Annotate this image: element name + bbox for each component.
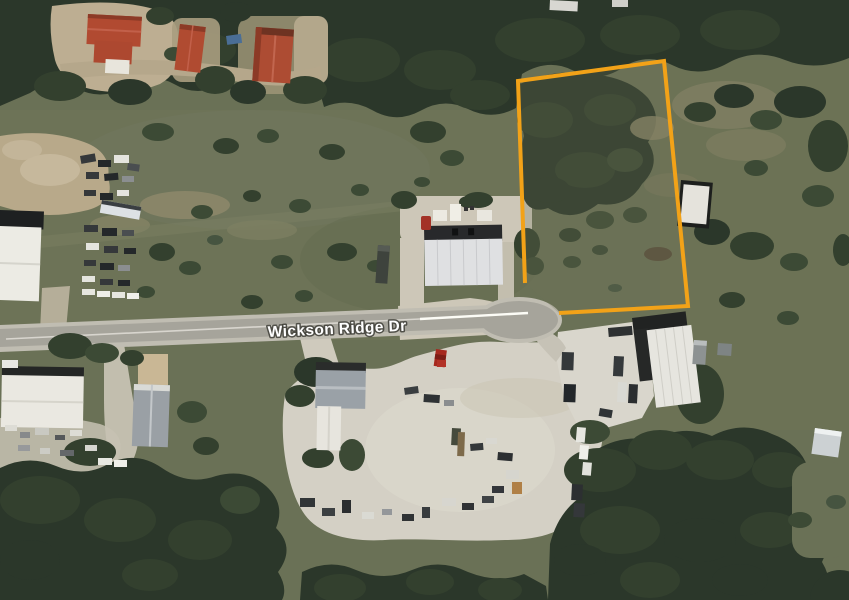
building-bottomright-shed <box>811 428 841 458</box>
building-left-white-warehouse <box>0 210 44 301</box>
building-shed-right-of-parcel <box>677 180 713 229</box>
building-house-red-3 <box>252 27 294 84</box>
building-bottomleft-warehouse <box>1 366 84 428</box>
building-small-shed-a <box>433 210 447 221</box>
building-small-shed-b <box>450 204 461 221</box>
satellite-map[interactable]: Wickson Ridge Dr <box>0 0 849 600</box>
parcel-interior <box>518 61 688 313</box>
building-small-shed-c <box>477 210 492 221</box>
parcel-overlay <box>518 61 688 313</box>
building-gray-shed <box>132 384 170 447</box>
satellite-imagery: Wickson Ridge Dr <box>0 0 849 600</box>
building-house-red-2 <box>174 24 205 73</box>
vehicle-red-car <box>421 216 431 230</box>
building-center-shop <box>424 225 503 286</box>
